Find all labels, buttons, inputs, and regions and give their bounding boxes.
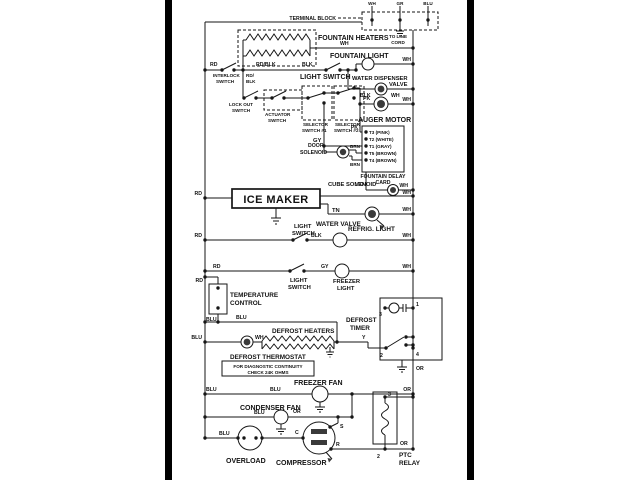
compressor-terminal-c: C: [295, 430, 299, 436]
freezer-light-label: LIGHT: [337, 286, 355, 292]
wire-label-wh: WH: [402, 233, 411, 239]
fountain-heaters-label: FOUNTAIN HEATERS: [318, 35, 389, 42]
wire-label-or: OR: [416, 366, 424, 372]
lock-out-switch-label: LOCK OUT: [229, 102, 253, 107]
temperature-control-label: TEMPERATURE: [230, 292, 279, 299]
defrost-timer-label: TIMER: [350, 325, 370, 332]
wire-label-rd: RD: [213, 264, 221, 270]
interlock-switch-label: SWITCH: [216, 79, 235, 84]
wire-label-rd: RD: [210, 62, 218, 68]
wire-label-or: OR: [400, 441, 408, 447]
timer-terminal-4: 4: [416, 352, 419, 358]
selector-switch-1-label: SELECTOR: [303, 122, 329, 127]
defrost-timer-box: [380, 298, 442, 360]
wire-label-or: OR: [293, 409, 301, 415]
timer-terminal-2: 2: [380, 353, 383, 359]
wire-label-wh: WH: [402, 207, 411, 213]
connector-pin-t1: T1 (GRAY): [369, 144, 392, 149]
refrig-light-lamp: [333, 233, 347, 247]
wire-label-blu: BLU: [219, 431, 230, 437]
ptc-terminal-2: 2: [377, 454, 380, 460]
wire-label-tn: TN: [332, 208, 340, 214]
overload-label: OVERLOAD: [226, 458, 266, 465]
wire-label-rd-blk: RD/BLK: [256, 62, 276, 68]
wire-label-brn: BRN: [350, 162, 361, 167]
fountain-light-label: FOUNTAIN LIGHT: [330, 53, 389, 60]
wire-label-wh: WH: [391, 93, 400, 99]
connector-pin-t2: T2 (WHITE): [369, 137, 394, 142]
wire-label-blu: BLU: [270, 387, 281, 393]
wire-label-blu: BLU: [254, 410, 265, 416]
cube-solenoid-coil: [388, 185, 399, 196]
connector-pin-t4: T4 (BROWN): [369, 158, 397, 163]
freezer-light-switch-label: SWITCH: [288, 285, 311, 291]
wire-label-rd: RD: [195, 191, 203, 197]
wire-label-blu: BLU: [206, 387, 217, 393]
wire-label-wh: WH: [402, 57, 411, 63]
wire-label-rd: RD: [195, 233, 203, 239]
door-solenoid-label: SOLENOID: [300, 150, 327, 156]
auger-motor-symbol: [374, 97, 388, 111]
overload-symbol: [238, 426, 262, 450]
compressor-terminal-r: R: [336, 442, 340, 448]
water-valve-coil: [365, 207, 379, 221]
wire-label-wh: WH: [255, 335, 264, 341]
auger-motor-label: AUGER MOTOR: [358, 117, 411, 124]
wire-label-rd-blk: BLK: [246, 79, 256, 84]
diagnostic-note: CHECK 24K OHMS: [247, 370, 288, 375]
connector-pin-t3: T3 (PINK): [369, 130, 390, 135]
condenser-fan-label: CONDENSER FAN: [240, 405, 301, 412]
wire-label-pk: PK: [351, 125, 358, 131]
door-solenoid-coil: [337, 146, 349, 158]
wire-label-wh: WH: [399, 183, 408, 189]
wire-label-wh: WH: [402, 264, 411, 270]
wire-label-y: Y: [362, 335, 366, 341]
ptc-relay-label: PTC: [399, 452, 412, 459]
arrowheads: [211, 225, 385, 463]
timer-terminal-3: 3: [379, 312, 382, 318]
to-line-cord-label: TO LINE: [389, 34, 407, 39]
light-switch-label: LIGHT SWITCH: [300, 74, 351, 81]
wire-label-blu: BLU: [236, 315, 247, 321]
ptc-relay-label: RELAY: [399, 460, 421, 467]
freezer-light-label: FREEZER: [333, 279, 361, 285]
wire-label-blu: BLU: [423, 1, 433, 6]
cube-solenoid-label: CUBE SOLENOID: [328, 182, 376, 188]
wire-label-gr: GR: [397, 1, 405, 6]
diagnostic-note: FOR DIAGNOSTIC CONTINUITY: [233, 364, 302, 369]
freezer-light-switch-label: LIGHT: [290, 278, 308, 284]
wire-label-blu: BLU: [191, 335, 202, 341]
wire-label-wh: WH: [402, 190, 411, 196]
freezer-fan-motor: [312, 386, 328, 402]
wire-label-blk: BLK: [311, 233, 322, 239]
actuator-switch-label: SWITCH: [268, 118, 287, 123]
to-line-cord-label: CORD: [391, 40, 405, 45]
terminal-block-label: TERMINAL BLOCK: [289, 16, 336, 22]
interlock-switch-label: INTERLOCK: [213, 73, 240, 78]
wire-label-wh: WH: [368, 1, 376, 6]
refrig-light-label: REFRIG. LIGHT: [348, 226, 395, 233]
wire-label-wh: WH: [402, 97, 411, 103]
ptc-terminal-3: 3: [388, 392, 391, 398]
water-dispenser-valve-label: VALVE: [389, 82, 408, 88]
wire-label-wh: WH: [340, 41, 349, 47]
fountain-delay-card-label: CARD: [376, 180, 391, 186]
wire-label-blu: BLU: [206, 317, 217, 323]
defrost-heaters-label: DEFROST HEATERS: [272, 328, 335, 335]
actuator-switch-label: ACTUATOR: [265, 112, 291, 117]
water-dispenser-valve-coil: [375, 83, 387, 95]
defrost-timer-label: DEFROST: [346, 317, 377, 324]
wire-label-blk: BLK: [302, 62, 313, 68]
wire-label-brn: BRN: [350, 144, 361, 149]
door-solenoid-label: DOOR: [308, 143, 324, 149]
lock-out-switch-label: SWITCH: [232, 108, 251, 113]
connector-pin-t5: T5 (BROWN): [369, 151, 397, 156]
wiring-diagram: WH GR BLU TERMINAL BLOCK TO LINE CORD FO…: [0, 0, 640, 480]
wire-label-gy: GY: [321, 264, 329, 270]
wire-label-rd: RD: [196, 278, 204, 284]
wire-label-pk: PK: [363, 96, 370, 102]
defrost-thermostat-symbol: [241, 336, 253, 348]
ice-maker-label: ICE MAKER: [243, 194, 308, 206]
wire-label-rd-blk: RD/: [246, 73, 255, 78]
wire-label-or: OR: [403, 387, 411, 393]
refrig-light-switch-label: LIGHT: [294, 224, 312, 230]
compressor-terminal-s: S: [340, 424, 344, 430]
selector-switch-1-label: SWITCH #1: [302, 128, 327, 133]
defrost-thermostat-label: DEFROST THERMOSTAT: [230, 354, 306, 361]
freezer-light-lamp: [335, 264, 349, 278]
freezer-fan-label: FREEZER FAN: [294, 380, 343, 387]
timer-terminal-1: 1: [416, 302, 419, 308]
compressor-label: COMPRESSOR: [276, 460, 327, 467]
condenser-fan-motor: [274, 410, 288, 424]
temperature-control-label: CONTROL: [230, 300, 262, 307]
